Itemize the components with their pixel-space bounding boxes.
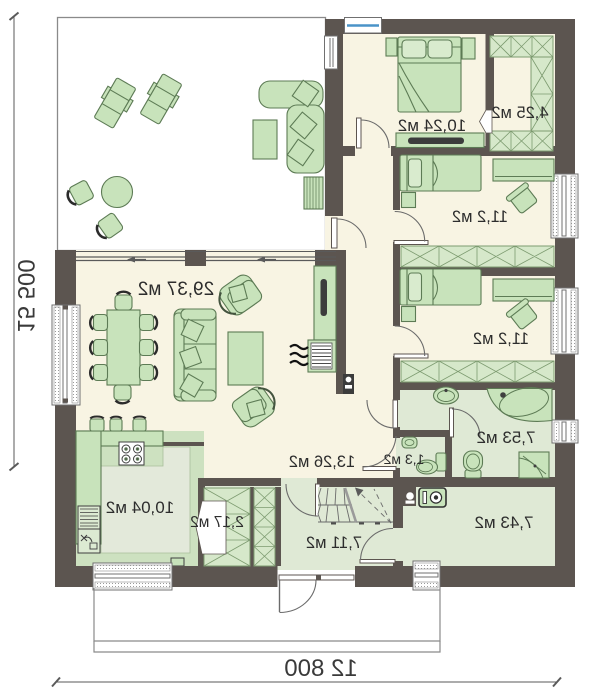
svg-text:11,2 м2: 11,2 м2 — [473, 330, 529, 348]
svg-text:29,37 м2: 29,37 м2 — [138, 279, 214, 300]
svg-text:10,24 м2: 10,24 м2 — [398, 116, 466, 135]
svg-text:2,17 м2: 2,17 м2 — [190, 514, 244, 531]
svg-text:7,11 м2: 7,11 м2 — [306, 534, 362, 552]
svg-text:13,26 м2: 13,26 м2 — [289, 453, 355, 471]
svg-text:7,43 м2: 7,43 м2 — [475, 513, 534, 532]
svg-text:11,2 м2: 11,2 м2 — [452, 208, 508, 226]
svg-text:15 500: 15 500 — [12, 259, 39, 332]
svg-text:1,3 м2: 1,3 м2 — [383, 451, 424, 467]
svg-text:4,25 м2: 4,25 м2 — [491, 104, 548, 122]
svg-text:10,04 м2: 10,04 м2 — [106, 498, 174, 517]
svg-text:7,53 м2: 7,53 м2 — [477, 428, 536, 447]
svg-text:12 800: 12 800 — [284, 655, 357, 682]
